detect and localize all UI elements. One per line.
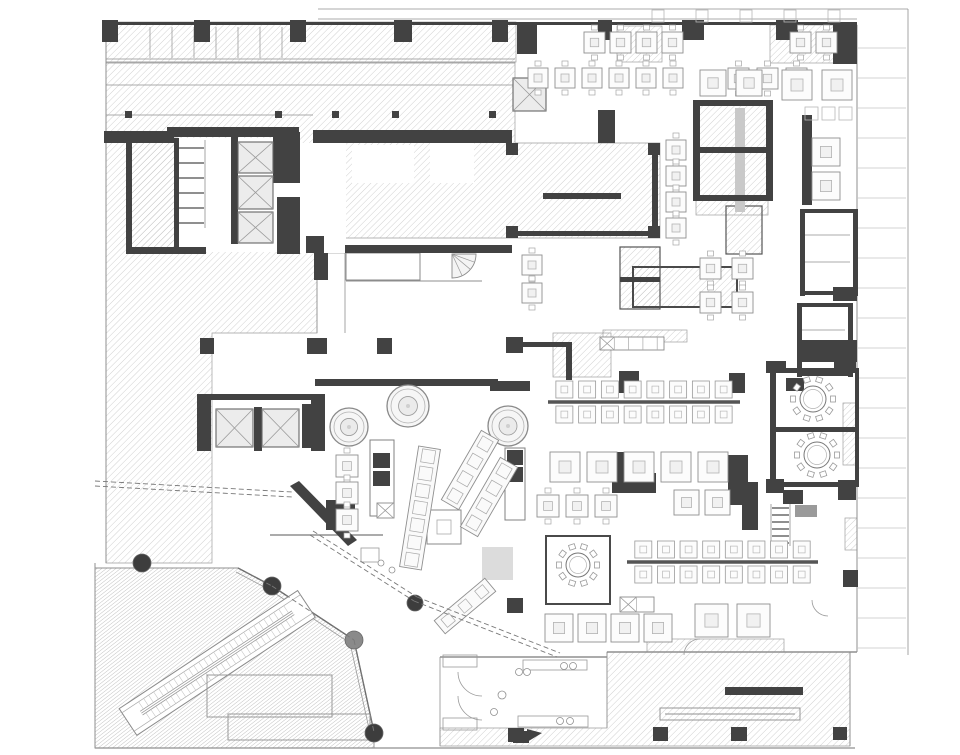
dining-table [601,406,618,423]
wall-segment [543,193,621,199]
dining-chair [797,439,805,447]
table-cushion [619,622,630,633]
counter-body [400,446,441,570]
dining-table [657,566,674,583]
dining-chair [831,396,836,402]
wall-segment [517,24,537,54]
hatch-region [726,206,762,254]
table-cushion [343,462,352,471]
bar-stool [389,567,395,573]
wall-segment [725,687,803,695]
counter-body [434,578,495,633]
table-row [652,10,840,22]
plan-layers [95,9,908,748]
room-outline [518,716,588,727]
bar-stool [498,691,506,699]
wall-segment [731,727,747,741]
dining-table [670,406,687,423]
dining-table [771,541,788,558]
wall-segment [598,110,615,143]
floor-plan-drawing [0,0,960,755]
dining-table [635,566,652,583]
table-cushion [559,461,571,473]
table-cushion [682,498,692,508]
dining-chair [574,488,580,493]
dining-chair [797,463,805,471]
dining-chair [616,61,622,66]
table-row [695,604,770,637]
dining-table [715,406,732,423]
bar-circle-center [506,424,510,428]
wall-segment [783,490,803,504]
dining-chair [529,248,535,253]
dining-chair [829,463,837,471]
dining-table [670,381,687,398]
dining-chair [670,25,676,30]
table-row [805,107,852,120]
wall-segment [770,427,859,432]
wall-segment [197,399,211,451]
table-cushion [652,622,663,633]
dining-chair [569,544,576,551]
dining-table [725,541,742,558]
wall-segment [313,130,512,143]
stair-treads [772,508,789,543]
dining-chair [344,448,350,453]
door-swing-arc [458,672,482,696]
spiral-stair-fan [452,254,476,278]
hatch-region [131,138,178,252]
wall-segment [394,20,412,42]
table-cushion [672,224,680,232]
wall-segment [290,20,306,42]
wall-segment [373,453,390,468]
table-cushion [744,78,754,88]
dining-chair [816,415,823,422]
dining-chair [736,61,742,66]
wall-segment [742,482,758,530]
dining-chair [545,488,551,493]
dining-table [579,381,596,398]
wall-segment [373,471,390,486]
table-cushion [544,502,553,511]
counter-body [620,597,654,612]
dining-chair [569,580,576,587]
wall-segment [277,132,300,183]
dining-chair [562,90,568,95]
table-cushion [528,289,536,297]
dining-table [680,541,697,558]
round-dining-table [791,377,836,422]
table-cushion [669,74,677,82]
wall-segment [620,277,660,282]
dining-chair [529,305,535,310]
dining-chair [643,90,649,95]
wall-segment [275,111,282,118]
table-cushion [670,461,682,473]
table-cushion [668,38,676,46]
dining-chair [825,407,833,415]
dining-chair [803,377,810,384]
dining-chair [820,471,827,478]
dining-table [692,381,709,398]
table-cushion [738,264,746,272]
bar-circle-center [406,404,410,408]
door-swing-arc [812,600,828,616]
dining-chair [673,240,679,245]
wall-segment [492,20,508,42]
bar-circle-banquette [330,408,368,446]
wall-segment [332,111,339,118]
table-row [812,138,840,200]
dining-chair [344,475,350,480]
communal-table-row [548,381,740,423]
wall-segment [693,100,773,106]
wall-segment [345,245,512,253]
dining-chair [740,315,746,320]
table-cushion [706,264,714,272]
dining-chair [798,25,804,30]
dining-chair [618,25,624,30]
bar-circle-center [347,425,351,429]
dining-table [579,406,596,423]
table-cushion [820,180,831,191]
wall-segment [125,111,132,118]
wall-segment [106,22,857,25]
wall-segment [834,361,856,371]
dining-table [703,566,720,583]
dining-chair [835,452,840,458]
bar-stool [516,669,523,676]
dining-chair [535,61,541,66]
hatch-region [106,22,516,62]
bar-stool [567,718,574,725]
dining-chair [798,55,804,60]
bar-stool [524,669,531,676]
table-cushion [707,461,719,473]
bar-stool [557,718,564,725]
wall-segment [766,361,786,373]
table-row [545,614,672,642]
table-cushion [615,74,623,82]
wall-segment [800,209,805,296]
communal-table-row [627,541,818,583]
wall-segment [306,236,324,253]
table-cushion [672,172,680,180]
dining-chair [344,533,350,538]
table-cushion [642,38,650,46]
dining-chair [829,439,837,447]
table-cushion [713,498,723,508]
round-dining-table [795,433,840,478]
dining-chair [344,502,350,507]
table-cushion [573,502,582,511]
dashed-canopy-line [310,535,414,601]
dining-chair [794,61,800,66]
wall-segment [490,381,530,391]
dining-chair [557,562,562,568]
dining-chair [595,562,600,568]
round-column [365,724,383,742]
dining-table [556,406,573,423]
wall-segment [843,570,858,587]
wall-segment [254,407,262,451]
wall-segment [853,209,858,296]
dining-chair [574,519,580,524]
wall-segment [833,287,857,301]
table-cushion [820,146,831,157]
hatch-region [843,403,857,465]
dining-table [680,566,697,583]
dining-table [647,406,664,423]
dining-chair [559,550,567,558]
dining-chair [708,285,714,290]
dining-chair [816,377,823,384]
wall-segment [652,150,658,228]
dining-table [556,381,573,398]
wall-segment [653,727,668,741]
dining-chair [740,251,746,256]
room-outline [427,510,461,544]
table-cushion [763,74,771,82]
dining-chair [644,25,650,30]
table-cushion [708,78,718,88]
table-cushion [706,298,714,306]
dining-chair [803,415,810,422]
dining-chair [708,315,714,320]
table-row [666,133,686,245]
dining-chair [562,61,568,66]
wall-segment [802,115,812,205]
wall-segment [507,598,523,613]
dining-table [624,381,641,398]
table-cushion [602,502,611,511]
dining-table [703,541,720,558]
dining-chair [603,519,609,524]
wall-segment [197,394,325,400]
wall-segment [506,143,518,155]
wall-segment [314,253,328,280]
table-cushion [822,38,830,46]
round-dining-table [557,544,600,587]
terrace-table [822,107,835,120]
dining-chair [807,471,814,478]
table-cushion [528,261,536,269]
table-row [537,488,617,524]
table-cushion [642,74,650,82]
dining-chair [529,276,535,281]
table-cushion [590,38,598,46]
dining-chair [673,159,679,164]
terrace-table [828,10,840,22]
dining-chair [670,90,676,95]
dining-chair [824,25,830,30]
table-top [804,442,830,468]
dining-chair [580,544,587,551]
dining-chair [545,519,551,524]
wall-segment [766,479,784,493]
wall-segment [838,480,856,500]
floor-plan-page [0,0,960,755]
dining-chair [616,90,622,95]
table-cushion [738,298,746,306]
terrace-table [740,10,752,22]
wall-segment [104,131,174,143]
table-cushion [343,489,352,498]
dining-chair [791,396,796,402]
room-outline [361,548,379,562]
dining-chair [793,407,801,415]
table-cushion [705,614,718,627]
wall-segment [174,138,179,250]
dining-chair [708,251,714,256]
wall-segment [797,303,852,307]
bar-stool [570,663,577,670]
dining-chair [592,55,598,60]
wall-segment [200,338,214,354]
dining-chair [590,550,598,558]
dining-chair [589,90,595,95]
dining-table [771,566,788,583]
equipment-counter [620,597,654,612]
wall-segment [833,727,847,740]
round-column [407,595,423,611]
table-cushion [561,74,569,82]
room-outline [523,660,587,670]
table-cushion [588,74,596,82]
dining-chair [820,433,827,440]
table-cushion [672,146,680,154]
dining-table [635,541,652,558]
dining-table [601,381,618,398]
wall-segment [307,338,327,354]
table-row [528,61,683,95]
wall-segment [377,338,392,354]
dining-chair [825,383,833,391]
bar-stool [491,709,498,716]
table-row [674,490,730,515]
wall-segment [512,231,652,236]
white-corridor-mask [430,143,474,183]
wall-segment [682,20,704,40]
dining-chair [673,133,679,138]
dining-table [793,566,810,583]
table-cushion [586,622,597,633]
wall-segment [566,342,572,380]
wall-segment [392,111,399,118]
spiral-stair [452,254,476,278]
dining-chair [740,285,746,290]
table-cushion [534,74,542,82]
table-cushion [633,461,645,473]
dining-chair [765,91,771,96]
wall-segment [513,731,529,743]
table-cushion [672,198,680,206]
white-corridor-mask [352,145,414,183]
room-outline [437,520,451,534]
dining-table [624,406,641,423]
wall-segment [800,209,858,213]
dining-chair [603,488,609,493]
wall-segment [311,399,325,451]
dining-chair [644,55,650,60]
table-top [800,386,826,412]
dining-chair [589,61,595,66]
dining-table [725,566,742,583]
wall-segment [489,111,496,118]
round-column [133,554,151,572]
dashed-canopy-line [414,601,557,657]
angled-counter [400,446,441,570]
bar-stool [378,560,384,566]
table-row [782,70,852,100]
table-row [522,248,542,310]
table-cushion [796,38,804,46]
gray-fill-block [795,505,817,517]
dining-chair [590,572,598,580]
dining-chair [618,55,624,60]
dining-chair [673,211,679,216]
dining-chair [559,572,567,580]
wall-segment [277,197,300,254]
table-cushion [831,79,843,91]
dining-chair [535,90,541,95]
table-cushion [343,516,352,525]
terrace-table [652,10,664,22]
dining-chair [580,580,587,587]
table-row [550,452,728,482]
counter-body [600,337,664,350]
room-outline [346,253,420,280]
dining-chair [670,55,676,60]
angled-counter [434,578,495,633]
bar-stool [561,663,568,670]
table-cushion [553,622,564,633]
table-cushion [596,461,608,473]
hatch-region [845,518,857,550]
dining-table [793,541,810,558]
terrace-table [839,107,852,120]
dining-chair [673,185,679,190]
wall-segment [797,303,802,377]
table-cushion [791,79,803,91]
dining-chair [824,55,830,60]
dining-table [647,381,664,398]
table-row [336,448,358,538]
dining-chair [592,25,598,30]
gray-fill-block [482,547,513,580]
wall-segment [506,337,523,353]
equipment-counter [600,337,664,350]
wall-segment [693,195,773,201]
wall-segment [194,20,210,42]
wall-segment [231,137,238,244]
wall-segment [102,20,118,42]
dining-table [748,566,765,583]
dining-table [692,406,709,423]
wall-segment [693,147,773,153]
door-swing-arc [458,696,482,720]
wall-segment [126,247,206,254]
dining-chair [643,61,649,66]
table-cushion [747,614,760,627]
dining-table [748,541,765,558]
dining-chair [670,61,676,66]
dining-chair [765,61,771,66]
dining-table [657,541,674,558]
equipment-counter [377,503,394,518]
dining-chair [795,452,800,458]
